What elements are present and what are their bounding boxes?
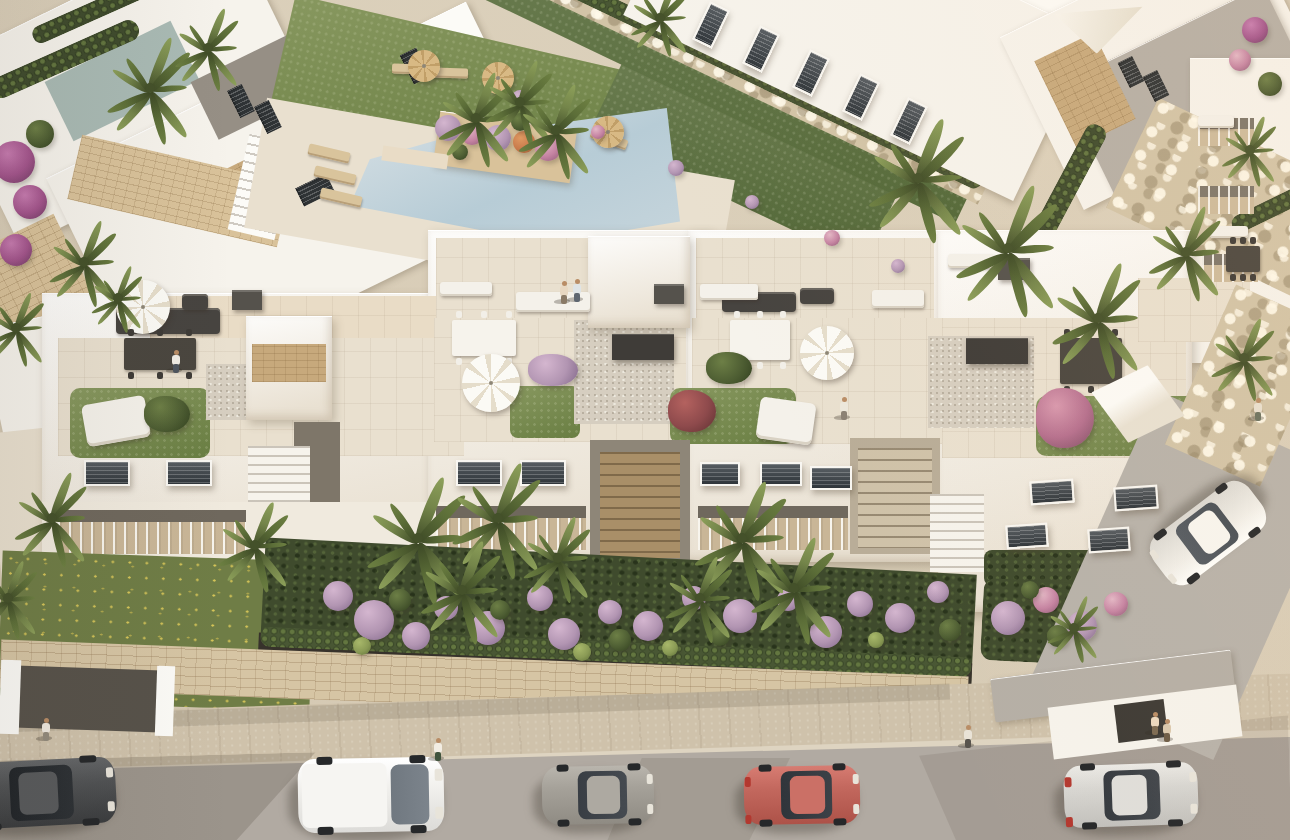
pedestrian — [571, 279, 583, 303]
pedestrian — [1252, 398, 1264, 422]
window-dark — [1029, 478, 1075, 505]
chair — [186, 329, 192, 336]
palm-crown — [789, 583, 799, 593]
palm-crown — [1003, 243, 1013, 253]
person-torso — [1254, 403, 1262, 413]
balcony-railing — [1198, 186, 1254, 214]
shrub-lilac — [402, 622, 430, 650]
terrace-box-charcoal — [612, 334, 674, 360]
shrub-green — [1258, 72, 1282, 96]
chair — [780, 311, 786, 318]
person-legs — [965, 739, 971, 748]
window-blinds — [168, 462, 210, 484]
car-wheel — [318, 827, 334, 835]
window-blinds — [522, 462, 564, 484]
terrace-b-lawn — [510, 386, 580, 438]
car-wheel — [833, 764, 846, 771]
car-wheel — [411, 825, 427, 833]
chair — [1250, 237, 1256, 244]
car-roof — [18, 771, 60, 815]
car-headlight — [1190, 804, 1197, 814]
window-dark — [1113, 484, 1159, 511]
car-headlight — [106, 767, 114, 778]
chair — [506, 311, 512, 318]
pedestrian — [170, 350, 182, 374]
terrace-lounger-pair — [755, 396, 816, 445]
shrub-lilac — [991, 601, 1025, 635]
pedestrian — [40, 718, 52, 742]
shrub-grass — [353, 637, 371, 655]
window-balc — [1198, 186, 1254, 214]
chair — [1230, 274, 1236, 281]
terrace-bench-white — [440, 282, 492, 296]
terrace-box-dark — [232, 290, 262, 310]
car-wheel — [760, 820, 773, 827]
person-torso — [573, 284, 581, 294]
chair — [456, 358, 462, 365]
chair — [757, 311, 763, 318]
shrub-lilac — [847, 591, 873, 617]
window-dark — [166, 460, 212, 486]
car-taillight — [745, 814, 751, 823]
terrace-table-white — [452, 320, 516, 356]
window-dark — [700, 462, 740, 486]
window-blinds — [86, 462, 128, 484]
window-blinds — [1031, 481, 1072, 504]
left-gate-post-1 — [0, 660, 21, 735]
shrub-lilac — [745, 195, 759, 209]
parasol-pole — [496, 76, 500, 80]
palm-crown — [79, 257, 89, 267]
person-head — [1153, 712, 1158, 717]
shrub-magenta — [0, 234, 32, 266]
window-blinds — [702, 464, 738, 484]
terrace-bench-white — [872, 290, 924, 308]
person-legs — [173, 364, 179, 373]
d-side-stairs — [930, 494, 984, 572]
palm-crown — [1069, 623, 1079, 633]
pedestrian — [1161, 719, 1173, 743]
palm-crown — [145, 83, 155, 93]
car-wheel — [628, 764, 640, 771]
chair — [780, 362, 786, 369]
shrub-lilac — [927, 581, 949, 603]
window-blinds — [1007, 525, 1046, 548]
terrace-box-charcoal — [966, 338, 1028, 364]
chair — [481, 311, 487, 318]
cd-stair-steps — [858, 448, 932, 548]
palm-crown — [457, 585, 467, 595]
car-taillight — [1066, 817, 1073, 827]
person-legs — [435, 752, 441, 761]
left-gate-recess — [7, 665, 169, 733]
car-taillight — [745, 777, 751, 786]
parked-car-silver — [1063, 762, 1199, 829]
shrub-green — [939, 619, 961, 641]
car-headlight — [107, 801, 115, 812]
parasol-pole — [489, 381, 493, 385]
chair — [1230, 237, 1236, 244]
person-head — [562, 281, 567, 286]
person-torso — [964, 730, 972, 740]
person-legs — [841, 411, 847, 420]
shrub-pink — [591, 125, 605, 139]
terrace-lounger-white — [1198, 116, 1234, 128]
car-wheel — [79, 755, 96, 763]
car-taillight — [1065, 777, 1072, 787]
window-blinds — [1115, 487, 1156, 510]
car-glass — [391, 764, 430, 825]
terrace-blob-green — [144, 396, 190, 432]
terrace-parasol — [800, 326, 854, 380]
car-headlight — [1189, 772, 1196, 782]
window-dark — [456, 460, 502, 486]
shrub-lilac — [323, 581, 353, 611]
chair — [128, 329, 134, 336]
shrub-lilac — [885, 603, 915, 633]
window-dark — [520, 460, 566, 486]
shrub-green — [26, 120, 54, 148]
palm-crown — [551, 125, 561, 135]
person-legs — [43, 732, 49, 741]
person-torso — [1151, 717, 1159, 727]
person-head — [1165, 719, 1170, 724]
shrub-lilac — [668, 160, 684, 176]
shrub-grass — [868, 632, 884, 648]
terrace-chair-dark — [800, 288, 834, 304]
car-roof — [1112, 775, 1148, 816]
car-wheel — [759, 765, 772, 772]
shrub-lilac — [891, 259, 905, 273]
person-head — [174, 350, 179, 355]
window-dark — [1087, 527, 1131, 554]
person-torso — [560, 286, 568, 296]
chair — [157, 372, 163, 379]
shrub-lilac — [354, 600, 394, 640]
terrace-chair-dark — [182, 294, 208, 310]
car-wheel — [1168, 819, 1183, 826]
shrub-pink — [824, 230, 840, 246]
parasol-pole — [422, 64, 426, 68]
shrub-grass — [573, 643, 591, 661]
parasol-pole — [606, 130, 610, 134]
palm-crown — [1181, 247, 1191, 257]
palm-crown — [250, 540, 260, 550]
car-wheel — [316, 756, 332, 764]
chair — [1250, 274, 1256, 281]
palm-crown — [113, 293, 123, 303]
chair — [734, 311, 740, 318]
left-gate-post-2 — [155, 666, 175, 737]
pedestrian — [432, 738, 444, 762]
car-wheel — [1166, 760, 1181, 767]
palm-crown — [47, 513, 57, 523]
person-legs — [1152, 726, 1158, 735]
car-wheel — [834, 819, 847, 826]
terrace-parasol-tan — [408, 50, 440, 82]
palm-crown — [695, 593, 705, 603]
aerial-apartment-complex-render — [0, 0, 1290, 840]
person-head — [966, 725, 971, 730]
palm-crown — [493, 513, 503, 523]
car-headlight — [435, 769, 443, 781]
car-roof — [586, 776, 620, 814]
person-legs — [1255, 412, 1261, 421]
window-dark — [810, 466, 852, 490]
center-stair-steps — [600, 452, 680, 558]
car-headlight — [647, 805, 653, 814]
palm-crown — [471, 113, 481, 123]
parked-car-gray — [542, 765, 655, 825]
palm-crown — [655, 13, 665, 23]
palm-crown — [553, 553, 563, 563]
parasol-pole — [141, 305, 145, 309]
palm-crown — [737, 533, 747, 543]
person-head — [575, 279, 580, 284]
balcony-a-shade — [58, 510, 246, 522]
window-blinds — [1089, 529, 1128, 552]
window-blinds — [458, 462, 500, 484]
window-blinds — [762, 464, 800, 484]
chair — [1240, 274, 1246, 281]
terrace-parasol — [462, 354, 520, 412]
car-wheel — [82, 818, 99, 826]
pedestrian — [838, 397, 850, 421]
shrub-lilac — [633, 611, 663, 641]
shrub-green — [490, 600, 510, 620]
palm-crown — [1239, 353, 1249, 363]
person-legs — [1164, 733, 1170, 742]
shrub-green — [1021, 581, 1039, 599]
chair — [157, 329, 163, 336]
palm-crown — [11, 323, 21, 333]
person-head — [1256, 398, 1261, 403]
parked-van-white — [297, 757, 444, 834]
shrub-lilac — [598, 600, 622, 624]
terrace-table-dark — [1226, 246, 1260, 272]
car-wheel — [557, 820, 569, 827]
car-headlight — [647, 774, 653, 783]
car-roof — [302, 763, 388, 828]
parked-car-dark — [0, 756, 118, 830]
palm-crown — [203, 43, 213, 53]
palm-crown — [1093, 313, 1103, 323]
person-torso — [434, 743, 442, 753]
person-head — [44, 718, 49, 723]
chair — [128, 372, 134, 379]
car-wheel — [629, 819, 641, 826]
car-headlight — [435, 807, 443, 819]
shrub-green — [609, 629, 631, 651]
window-blinds — [812, 468, 850, 488]
car-wheel — [1082, 822, 1097, 829]
shrub-lilac — [723, 599, 757, 633]
person-head — [436, 738, 441, 743]
shrub-magenta — [13, 185, 47, 219]
palm-crown — [515, 97, 525, 107]
terrace-blob-red — [668, 390, 716, 432]
car-headlight — [853, 774, 859, 783]
car-wheel — [556, 765, 568, 772]
chair — [186, 372, 192, 379]
window-dark — [1005, 523, 1049, 550]
person-torso — [840, 402, 848, 412]
chair — [757, 362, 763, 369]
person-torso — [42, 723, 50, 733]
chair — [1240, 237, 1246, 244]
shrub-grass — [662, 640, 678, 656]
palm-crown — [413, 533, 423, 543]
car-wheel — [410, 755, 426, 763]
person-head — [842, 397, 847, 402]
palm-crown — [3, 593, 13, 603]
stair-tower-a-stone — [252, 344, 326, 382]
terrace-bench-white — [700, 284, 758, 300]
stair-tower-bc — [588, 236, 690, 328]
shrub-magenta — [1242, 17, 1268, 43]
pedestrian — [962, 725, 974, 749]
person-legs — [574, 293, 580, 302]
car-wheel — [1080, 763, 1095, 770]
window-dark — [84, 460, 130, 486]
window-dark — [760, 462, 802, 486]
parasol-pole — [825, 351, 829, 355]
pedestrian — [1149, 712, 1161, 736]
shrub-pink — [1104, 592, 1128, 616]
palm-crown — [913, 173, 923, 183]
terrace-table-dark — [124, 338, 196, 370]
shrub-pink — [1229, 49, 1251, 71]
person-torso — [1163, 724, 1171, 734]
parked-car-red — [744, 765, 861, 825]
terrace-blob-pink — [1036, 388, 1094, 448]
palm-crown — [1245, 145, 1255, 155]
scene-root — [0, 0, 1290, 840]
terrace-box-dark — [654, 284, 684, 304]
car-headlight — [853, 804, 859, 813]
shrub-green — [389, 589, 411, 611]
car-roof — [790, 776, 825, 814]
terrace-blob-green — [706, 352, 752, 384]
chair — [456, 311, 462, 318]
person-torso — [172, 355, 180, 365]
terrace-blob-lilac — [528, 354, 578, 386]
